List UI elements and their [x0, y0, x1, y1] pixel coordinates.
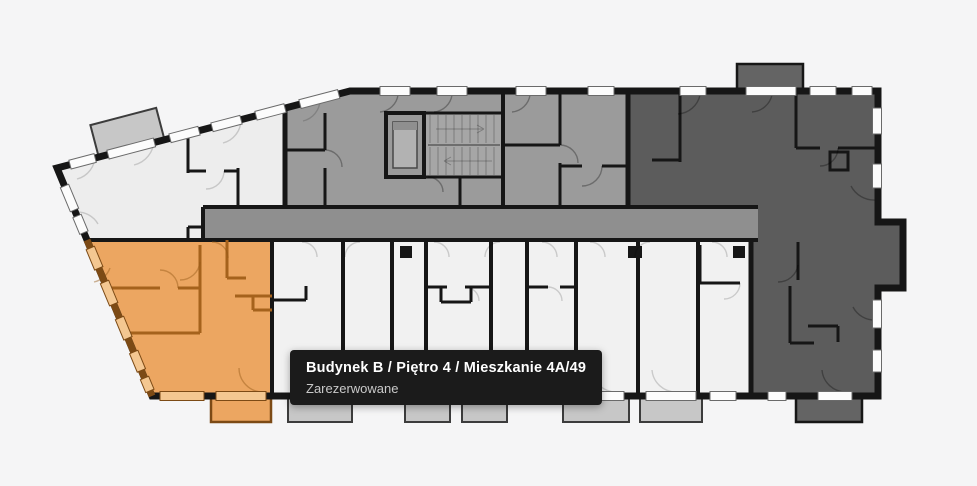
tooltip-title: Budynek B / Piętro 4 / Mieszkanie 4A/49 — [306, 360, 586, 376]
corridor — [203, 207, 758, 240]
floorplan-canvas: Budynek B / Piętro 4 / Mieszkanie 4A/49 … — [0, 0, 977, 486]
floorplan-svg — [0, 0, 977, 486]
apartment-tooltip: Budynek B / Piętro 4 / Mieszkanie 4A/49 … — [290, 350, 602, 405]
staircase — [424, 113, 503, 177]
tooltip-status: Zarezerwowane — [306, 381, 586, 396]
elevator — [386, 113, 424, 177]
apartment-4a49-selected[interactable] — [87, 240, 272, 396]
